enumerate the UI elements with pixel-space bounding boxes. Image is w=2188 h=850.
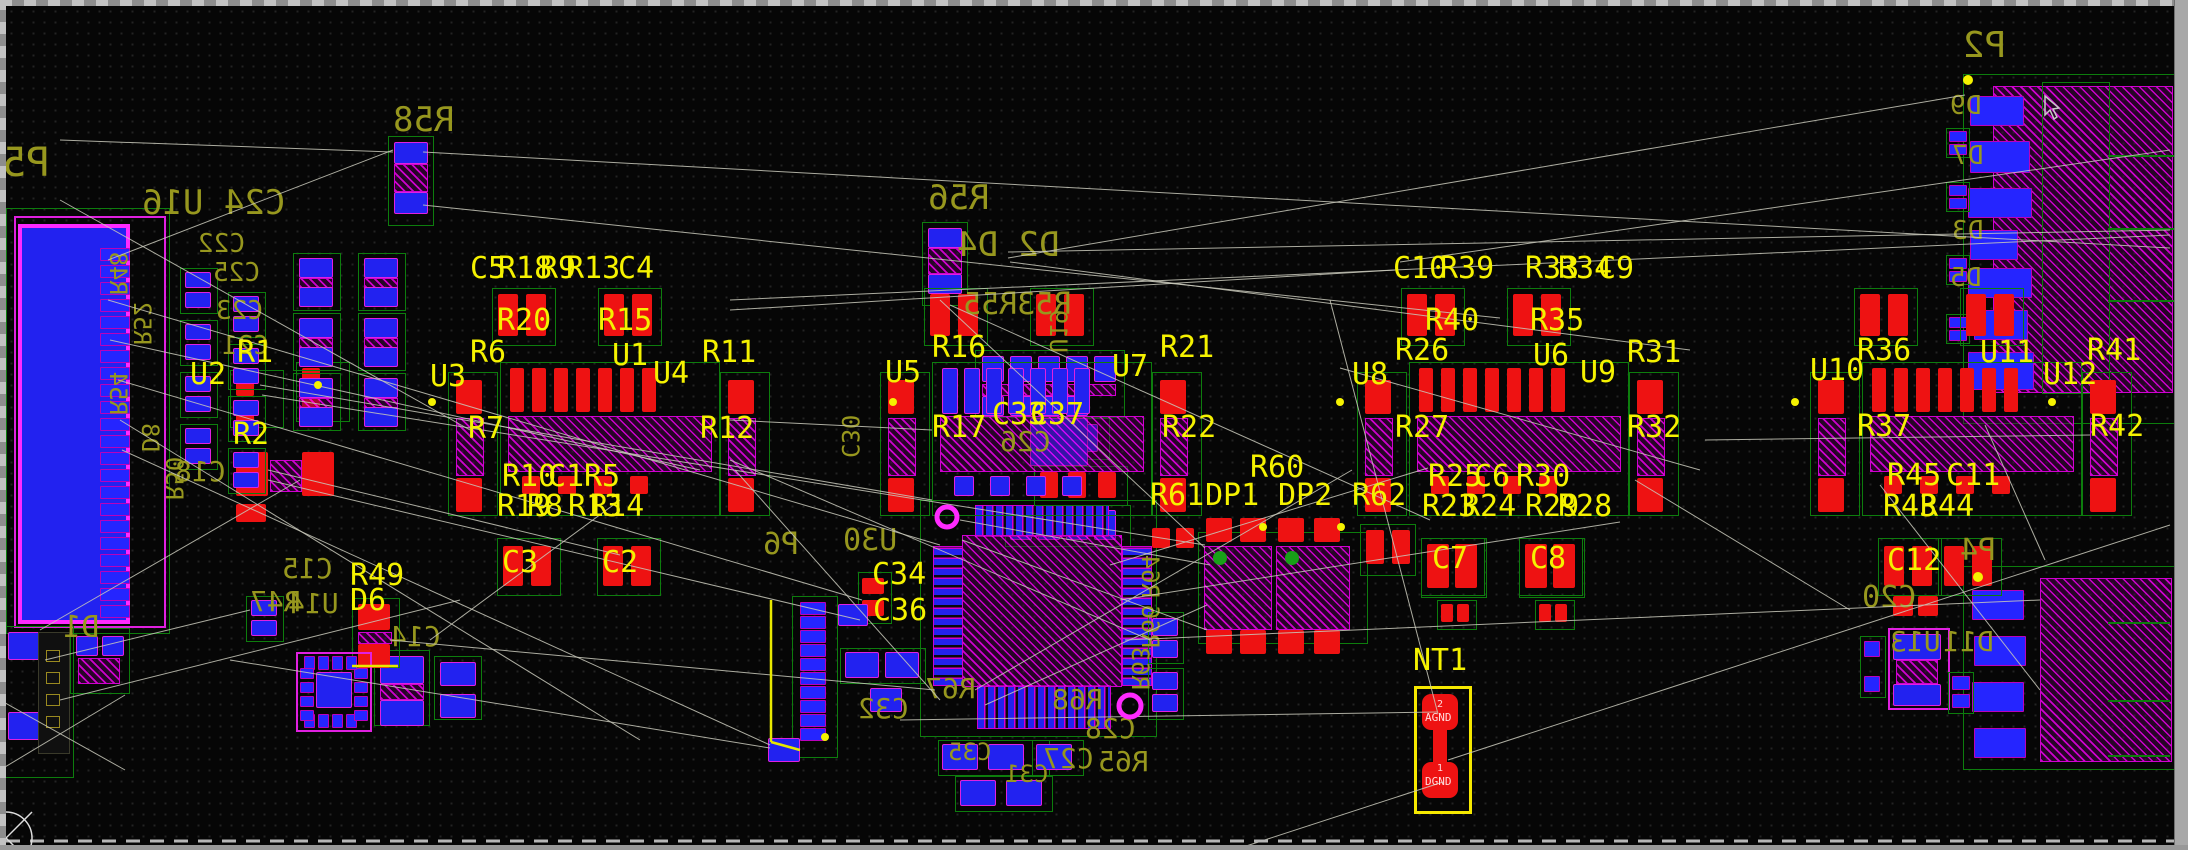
smd-pad-top[interactable] bbox=[1366, 530, 1384, 564]
refdes-bottom-P4[interactable]: P4 bbox=[1960, 536, 1996, 566]
refdes-bottom-C23[interactable]: C23 bbox=[216, 298, 263, 324]
smd-pad-bottom[interactable] bbox=[364, 287, 398, 307]
smd-pad-top[interactable] bbox=[1960, 368, 1974, 412]
smd-pad-bottom[interactable] bbox=[1952, 676, 1970, 690]
refdes-bottom-D9[interactable]: D9 bbox=[1950, 93, 1981, 119]
smd-pad-bottom[interactable] bbox=[300, 682, 314, 693]
refdes-bottom-U14[interactable]: U14 bbox=[288, 590, 339, 618]
refdes-top-C11[interactable]: C11 bbox=[1946, 461, 2000, 491]
refdes-bottom-U19[interactable]: U19 bbox=[1046, 310, 1070, 353]
refdes-top-U7[interactable]: U7 bbox=[1112, 352, 1148, 382]
smd-pad-top[interactable] bbox=[1314, 518, 1340, 542]
smd-pad-bottom[interactable] bbox=[100, 316, 130, 329]
refdes-bottom-C31[interactable]: C31 bbox=[1005, 762, 1048, 786]
smd-pad-bottom[interactable] bbox=[354, 682, 368, 693]
smd-pad-bottom[interactable] bbox=[364, 407, 398, 427]
smd-pad-bottom[interactable] bbox=[364, 347, 398, 367]
smd-pad-bottom[interactable] bbox=[845, 652, 879, 678]
refdes-bottom-C32[interactable]: C32 bbox=[858, 695, 909, 723]
refdes-top-R32[interactable]: R32 bbox=[1627, 413, 1681, 443]
refdes-bottom-C35[interactable]: C35 bbox=[948, 740, 991, 764]
refdes-top-R20[interactable]: R20 bbox=[497, 306, 551, 336]
refdes-bottom-C20[interactable]: C20 bbox=[1862, 583, 1916, 613]
refdes-bottom-C30[interactable]: C30 bbox=[838, 415, 862, 458]
smd-pad-bottom[interactable] bbox=[885, 652, 919, 678]
placebound-hatch[interactable] bbox=[1365, 418, 1393, 476]
refdes-top-C9[interactable]: C9 bbox=[1598, 254, 1634, 284]
net-tie-pin-DGND[interactable]: DGND bbox=[1425, 776, 1452, 787]
smd-pad-bottom[interactable] bbox=[964, 368, 980, 414]
smd-pad-bottom[interactable] bbox=[800, 714, 826, 727]
pcb-editor-window: R1U2R2U3R6R20R15U1U4R11R7R12C5R18R9R13C4… bbox=[0, 0, 2188, 850]
refdes-top-R39[interactable]: R39 bbox=[1440, 254, 1494, 284]
smd-pad-top[interactable] bbox=[576, 368, 590, 412]
smd-pad-bottom[interactable] bbox=[800, 728, 826, 741]
window-scrollbar-right[interactable] bbox=[2174, 0, 2188, 850]
smd-pad-top[interactable] bbox=[1463, 368, 1477, 412]
silk-line bbox=[2108, 300, 2174, 302]
placebound-hatch[interactable] bbox=[1896, 660, 1938, 684]
refdes-bottom-R67[interactable]: R67 bbox=[925, 675, 976, 703]
refdes-top-R12[interactable]: R12 bbox=[700, 414, 754, 444]
refdes-top-D6[interactable]: D6 bbox=[350, 586, 386, 616]
smd-pad-bottom[interactable] bbox=[800, 686, 826, 699]
smd-pad-bottom[interactable] bbox=[100, 588, 130, 601]
refdes-bottom-U13[interactable]: U13 bbox=[1890, 628, 1941, 656]
smd-pad-bottom[interactable] bbox=[1952, 694, 1970, 708]
smd-pad-top[interactable] bbox=[1441, 368, 1455, 412]
smd-pad-bottom[interactable] bbox=[318, 714, 329, 728]
refdes-top-C1[interactable]: C1 bbox=[548, 462, 584, 492]
refdes-top-U1[interactable]: U1 bbox=[612, 341, 648, 371]
refdes-top-U5[interactable]: U5 bbox=[885, 358, 921, 388]
smd-pad-bottom[interactable] bbox=[800, 602, 826, 615]
refdes-top-U8[interactable]: U8 bbox=[1352, 360, 1388, 390]
silk-line bbox=[2108, 755, 2170, 757]
smd-pad-top[interactable] bbox=[1637, 380, 1663, 414]
smd-pad-bottom[interactable] bbox=[100, 435, 130, 448]
smd-pad-bottom[interactable] bbox=[800, 644, 826, 657]
smd-pad-bottom[interactable] bbox=[838, 604, 868, 626]
smd-pad-bottom[interactable] bbox=[185, 292, 211, 308]
refdes-bottom-R48[interactable]: R48 bbox=[106, 252, 130, 295]
smd-pad-bottom[interactable] bbox=[364, 378, 398, 398]
smd-pad-bottom[interactable] bbox=[185, 272, 211, 288]
refdes-top-R21[interactable]: R21 bbox=[1160, 333, 1214, 363]
refdes-top-C7[interactable]: C7 bbox=[1432, 544, 1468, 574]
refdes-top-R61[interactable]: R61 bbox=[1150, 481, 1204, 511]
refdes-bottom-C25[interactable]: C25 bbox=[213, 260, 260, 286]
smd-pad-bottom[interactable] bbox=[800, 700, 826, 713]
smd-pad-top[interactable] bbox=[1176, 528, 1194, 548]
smd-pad-bottom[interactable] bbox=[440, 662, 476, 686]
window-frame-bottom bbox=[0, 845, 2188, 850]
placebound-hatch[interactable] bbox=[270, 460, 302, 492]
placebound-hatch[interactable] bbox=[1204, 546, 1272, 630]
refdes-top-R1[interactable]: R1 bbox=[237, 338, 273, 368]
refdes-top-U4[interactable]: U4 bbox=[653, 359, 689, 389]
placebound-hatch[interactable] bbox=[78, 658, 120, 684]
smd-pad-bottom[interactable] bbox=[1949, 185, 1967, 196]
refdes-top-C4[interactable]: C4 bbox=[618, 254, 654, 284]
smd-pad-bottom[interactable] bbox=[300, 668, 314, 679]
placebound-hatch[interactable] bbox=[1818, 418, 1846, 476]
smd-pad-bottom[interactable] bbox=[251, 620, 277, 636]
smd-pad-bottom[interactable] bbox=[1062, 476, 1082, 496]
smd-pad-top[interactable] bbox=[1529, 368, 1543, 412]
refdes-top-R17[interactable]: R17 bbox=[932, 413, 986, 443]
smd-pad-top[interactable] bbox=[1994, 294, 2014, 336]
smd-pad-bottom[interactable] bbox=[8, 712, 42, 740]
smd-pad-bottom[interactable] bbox=[299, 347, 333, 367]
smd-pad-bottom[interactable] bbox=[100, 537, 130, 550]
refdes-top-R6[interactable]: R6 bbox=[470, 338, 506, 368]
smd-pad-top[interactable] bbox=[2090, 478, 2116, 512]
refdes-bottom-R66[interactable]: R66 bbox=[1138, 605, 1162, 648]
smd-pad-bottom[interactable] bbox=[299, 287, 333, 307]
refdes-top-R35[interactable]: R35 bbox=[1530, 306, 1584, 336]
smd-pad-top[interactable] bbox=[1206, 518, 1232, 542]
smd-pad-bottom[interactable] bbox=[299, 378, 333, 398]
refdes-top-R28[interactable]: R28 bbox=[1558, 492, 1612, 522]
placebound-hatch[interactable] bbox=[962, 535, 1122, 687]
refdes-bottom-R50[interactable]: R50 bbox=[162, 457, 186, 500]
smd-pad-bottom[interactable] bbox=[354, 710, 368, 721]
smd-pad-bottom[interactable] bbox=[300, 696, 314, 707]
smd-pad-top[interactable] bbox=[2004, 368, 2018, 412]
refdes-bottom-P5[interactable]: P5 bbox=[2, 143, 50, 183]
smd-pad-top[interactable] bbox=[598, 368, 612, 412]
placebound-hatch[interactable] bbox=[358, 632, 392, 644]
silk-line bbox=[2108, 622, 2170, 624]
smd-pad-bottom[interactable] bbox=[1893, 684, 1941, 706]
refdes-top-U11[interactable]: U11 bbox=[1980, 338, 2034, 368]
smd-pad-bottom[interactable] bbox=[299, 318, 333, 338]
smd-pad-bottom[interactable] bbox=[233, 368, 259, 384]
smd-pad-bottom[interactable] bbox=[364, 258, 398, 278]
smd-pad-bottom[interactable] bbox=[100, 350, 130, 363]
refdes-top-R2[interactable]: R2 bbox=[233, 420, 269, 450]
smd-pad-bottom[interactable] bbox=[354, 696, 368, 707]
smd-pad-top[interactable] bbox=[532, 368, 546, 412]
smd-pad-top[interactable] bbox=[1982, 368, 1996, 412]
refdes-top-R26[interactable]: R26 bbox=[1395, 336, 1449, 366]
smd-pad-bottom[interactable] bbox=[100, 605, 130, 618]
refdes-bottom-R64[interactable]: R64 bbox=[1138, 555, 1162, 598]
smd-pad-top[interactable] bbox=[1551, 368, 1565, 412]
refdes-top-R5[interactable]: R5 bbox=[584, 462, 620, 492]
window-frame-left bbox=[0, 0, 6, 850]
smd-pad-top[interactable] bbox=[1152, 528, 1170, 548]
refdes-top-R15[interactable]: R15 bbox=[598, 306, 652, 336]
refdes-top-R45[interactable]: R45 bbox=[1887, 461, 1941, 491]
smd-pad-bottom[interactable] bbox=[942, 368, 958, 414]
refdes-top-U3[interactable]: U3 bbox=[430, 362, 466, 392]
smd-pad-top[interactable] bbox=[456, 478, 482, 512]
placebound-hatch[interactable] bbox=[1276, 546, 1350, 630]
refdes-top-U6[interactable]: U6 bbox=[1533, 341, 1569, 371]
refdes-bottom-D11[interactable]: D11 bbox=[1943, 628, 1994, 656]
refdes-bottom-P6[interactable]: P6 bbox=[763, 530, 799, 560]
smd-pad-bottom[interactable] bbox=[185, 428, 211, 444]
smd-pad-top[interactable] bbox=[1507, 368, 1521, 412]
refdes-top-R24[interactable]: R24 bbox=[1462, 492, 1516, 522]
refdes-bottom-U30[interactable]: U30 bbox=[843, 526, 897, 556]
refdes-bottom-P2[interactable]: P2 bbox=[1963, 28, 2006, 64]
smd-pad-top[interactable] bbox=[1860, 294, 1880, 336]
smd-pad-bottom[interactable] bbox=[364, 318, 398, 338]
connector-contact[interactable] bbox=[46, 694, 60, 706]
smd-pad-bottom[interactable] bbox=[100, 520, 130, 533]
smd-pad-bottom[interactable] bbox=[394, 192, 428, 214]
pcb-layout-canvas[interactable]: R1U2R2U3R6R20R15U1U4R11R7R12C5R18R9R13C4… bbox=[6, 6, 2174, 845]
refdes-top-R27[interactable]: R27 bbox=[1395, 413, 1449, 443]
refdes-top-R36[interactable]: R36 bbox=[1857, 336, 1911, 366]
smd-pad-top[interactable] bbox=[236, 504, 266, 522]
refdes-bottom-D8[interactable]: D8 bbox=[138, 423, 162, 452]
smd-pad-top[interactable] bbox=[1818, 478, 1844, 512]
smd-pad-top[interactable] bbox=[620, 368, 634, 412]
refdes-bottom-C14[interactable]: C14 bbox=[390, 623, 441, 651]
refdes-bottom-C26[interactable]: C26 bbox=[1000, 428, 1051, 456]
refdes-bottom-C22[interactable]: C22 bbox=[198, 231, 245, 257]
refdes-top-C37[interactable]: C37 bbox=[1030, 400, 1084, 430]
smd-pad-top[interactable] bbox=[1206, 630, 1232, 654]
smd-pad-top[interactable] bbox=[728, 478, 754, 512]
smd-pad-top[interactable] bbox=[1938, 368, 1952, 412]
refdes-top-R22[interactable]: R22 bbox=[1162, 413, 1216, 443]
smd-pad-top[interactable] bbox=[1888, 294, 1908, 336]
silk-line bbox=[2108, 700, 2170, 702]
refdes-top-R30[interactable]: R30 bbox=[1516, 462, 1570, 492]
placebound-hatch[interactable] bbox=[888, 418, 916, 476]
smd-pad-bottom[interactable] bbox=[990, 476, 1010, 496]
refdes-top-R11[interactable]: R11 bbox=[702, 338, 756, 368]
smd-pad-bottom[interactable] bbox=[1152, 672, 1178, 690]
refdes-top-C3[interactable]: C3 bbox=[502, 548, 538, 578]
refdes-bottom-C24U16[interactable]: C24 U16 bbox=[142, 186, 285, 220]
smd-pad-top[interactable] bbox=[1457, 604, 1469, 622]
refdes-top-U2[interactable]: U2 bbox=[190, 360, 226, 390]
refdes-top-R8[interactable]: R8 bbox=[527, 492, 563, 522]
smd-pad-bottom[interactable] bbox=[100, 452, 130, 465]
smd-pad-bottom[interactable] bbox=[316, 672, 352, 708]
refdes-top-R37[interactable]: R37 bbox=[1857, 412, 1911, 442]
smd-pad-bottom[interactable] bbox=[100, 299, 130, 312]
refdes-top-R31[interactable]: R31 bbox=[1627, 338, 1681, 368]
refdes-top-R41[interactable]: R41 bbox=[2087, 336, 2141, 366]
smd-pad-bottom[interactable] bbox=[299, 258, 333, 278]
smd-pad-bottom[interactable] bbox=[185, 396, 211, 412]
refdes-top-DP2[interactable]: DP2 bbox=[1278, 481, 1332, 511]
refdes-top-C12[interactable]: C12 bbox=[1887, 546, 1941, 576]
refdes-bottom-R54[interactable]: R54 bbox=[106, 372, 130, 415]
refdes-bottom-R52[interactable]: R52 bbox=[130, 302, 154, 345]
smd-pad-bottom[interactable] bbox=[100, 418, 130, 431]
refdes-bottom-D7[interactable]: D7 bbox=[1952, 143, 1983, 169]
refdes-top-R7[interactable]: R7 bbox=[468, 414, 504, 444]
smd-pad-bottom[interactable] bbox=[440, 694, 476, 718]
smd-pad-top[interactable] bbox=[1314, 630, 1340, 654]
refdes-bottom-R56[interactable]: R56 bbox=[928, 181, 989, 215]
smd-pad-top[interactable] bbox=[888, 478, 914, 512]
refdes-top-U9[interactable]: U9 bbox=[1580, 358, 1616, 388]
smd-pad-bottom[interactable] bbox=[318, 656, 329, 670]
smd-pad-bottom[interactable] bbox=[332, 656, 343, 670]
placebound-hatch[interactable] bbox=[394, 164, 428, 192]
smd-pad-top[interactable] bbox=[1392, 530, 1410, 564]
smd-pad-top[interactable] bbox=[554, 368, 568, 412]
smd-pad-bottom[interactable] bbox=[954, 476, 974, 496]
smd-pad-bottom[interactable] bbox=[332, 714, 343, 728]
smd-pad-top[interactable] bbox=[1918, 596, 1938, 616]
smd-pad-bottom[interactable] bbox=[1974, 728, 2026, 758]
smd-pad-top[interactable] bbox=[1966, 294, 1986, 336]
smd-pad-top[interactable] bbox=[1555, 604, 1567, 622]
smd-pad-bottom[interactable] bbox=[800, 672, 826, 685]
smd-pad-bottom[interactable] bbox=[102, 636, 124, 656]
smd-pad-bottom[interactable] bbox=[100, 554, 130, 567]
smd-pad-top[interactable] bbox=[302, 452, 334, 496]
net-tie-pin-1[interactable]: 1 bbox=[1437, 764, 1443, 774]
smd-pad-bottom[interactable] bbox=[233, 472, 259, 488]
smd-pad-top[interactable] bbox=[1872, 368, 1886, 412]
silk-line bbox=[2108, 155, 2174, 157]
placebound-hatch[interactable] bbox=[380, 684, 424, 700]
refdes-top-NT1[interactable]: NT1 bbox=[1413, 646, 1467, 676]
smd-pad-top[interactable] bbox=[1485, 368, 1499, 412]
refdes-top-C2[interactable]: C2 bbox=[602, 548, 638, 578]
smd-pad-bottom[interactable] bbox=[394, 142, 428, 164]
smd-pad-bottom[interactable] bbox=[100, 486, 130, 499]
smd-pad-bottom[interactable] bbox=[1968, 188, 2032, 218]
refdes-top-R16[interactable]: R16 bbox=[932, 333, 986, 363]
refdes-bottom-D1[interactable]: D1 bbox=[63, 613, 99, 643]
smd-pad-top[interactable] bbox=[1240, 518, 1266, 542]
net-tie-pin-2[interactable]: 2 bbox=[1437, 700, 1443, 710]
smd-pad-bottom[interactable] bbox=[1864, 676, 1880, 692]
smd-pad-top[interactable] bbox=[1637, 478, 1663, 512]
smd-pad-bottom[interactable] bbox=[233, 452, 259, 468]
smd-pad-bottom[interactable] bbox=[100, 571, 130, 584]
smd-pad-bottom[interactable] bbox=[100, 503, 130, 516]
smd-pad-bottom[interactable] bbox=[300, 710, 314, 721]
refdes-top-R40[interactable]: R40 bbox=[1425, 306, 1479, 336]
refdes-top-R13[interactable]: R13 bbox=[566, 254, 620, 284]
refdes-top-R14[interactable]: R14 bbox=[590, 492, 644, 522]
smd-pad-top[interactable] bbox=[510, 368, 524, 412]
refdes-bottom-C27[interactable]: C27 bbox=[1043, 745, 1094, 773]
smd-pad-top[interactable] bbox=[1278, 630, 1304, 654]
smd-pad-top[interactable] bbox=[1278, 518, 1304, 542]
refdes-bottom-C28[interactable]: C28 bbox=[1085, 715, 1136, 743]
smd-pad-bottom[interactable] bbox=[100, 469, 130, 482]
smd-pad-bottom[interactable] bbox=[100, 333, 130, 346]
refdes-top-C34[interactable]: C34 bbox=[872, 560, 926, 590]
smd-pad-top[interactable] bbox=[1894, 368, 1908, 412]
refdes-bottom-R68[interactable]: R68 bbox=[1052, 686, 1103, 714]
smd-pad-top[interactable] bbox=[1160, 380, 1186, 414]
refdes-bottom-C15[interactable]: C15 bbox=[282, 555, 333, 583]
refdes-top-R42[interactable]: R42 bbox=[2090, 412, 2144, 442]
connector-contact[interactable] bbox=[46, 650, 60, 662]
refdes-bottom-D3[interactable]: D3 bbox=[1952, 218, 1983, 244]
refdes-bottom-D5[interactable]: D5 bbox=[1950, 265, 1981, 291]
smd-pad-bottom[interactable] bbox=[380, 700, 424, 726]
refdes-bottom-D2D4[interactable]: D2 D4 bbox=[957, 228, 1059, 262]
smd-pad-bottom[interactable] bbox=[1949, 198, 1967, 209]
refdes-top-C36[interactable]: C36 bbox=[873, 596, 927, 626]
refdes-top-C8[interactable]: C8 bbox=[1530, 544, 1566, 574]
smd-pad-bottom[interactable] bbox=[1026, 476, 1046, 496]
refdes-top-DP1[interactable]: DP1 bbox=[1205, 481, 1259, 511]
refdes-bottom-R63[interactable]: R63 bbox=[1128, 647, 1152, 690]
smd-pad-bottom[interactable] bbox=[800, 616, 826, 629]
smd-pad-bottom[interactable] bbox=[185, 324, 211, 340]
smd-pad-top[interactable] bbox=[1441, 604, 1453, 622]
smd-pad-bottom[interactable] bbox=[233, 400, 259, 416]
refdes-top-C6[interactable]: C6 bbox=[1474, 462, 1510, 492]
qfp-pad-column[interactable] bbox=[933, 546, 963, 686]
smd-pad-bottom[interactable] bbox=[8, 632, 42, 660]
window-frame-top bbox=[0, 0, 2188, 6]
smd-pad-bottom[interactable] bbox=[299, 407, 333, 427]
smd-pad-bottom[interactable] bbox=[1152, 694, 1178, 712]
smd-pad-bottom[interactable] bbox=[1864, 641, 1880, 657]
refdes-bottom-R65[interactable]: R65 bbox=[1098, 748, 1149, 776]
silk-line bbox=[2108, 228, 2174, 230]
smd-pad-bottom[interactable] bbox=[346, 656, 357, 670]
smd-pad-top[interactable] bbox=[1407, 294, 1427, 336]
smd-pad-bottom[interactable] bbox=[1972, 682, 2024, 712]
smd-pad-bottom[interactable] bbox=[800, 658, 826, 671]
smd-pad-top[interactable] bbox=[1240, 630, 1266, 654]
smd-pad-top[interactable] bbox=[728, 380, 754, 414]
refdes-top-R62[interactable]: R62 bbox=[1352, 481, 1406, 511]
refdes-top-R44[interactable]: R44 bbox=[1920, 492, 1974, 522]
net-tie-pin-AGND[interactable]: AGND bbox=[1425, 712, 1452, 723]
smd-pad-bottom[interactable] bbox=[800, 630, 826, 643]
smd-pad-top[interactable] bbox=[1419, 368, 1433, 412]
smd-pad-bottom[interactable] bbox=[768, 738, 800, 762]
placebound-hatch[interactable] bbox=[2040, 578, 2172, 762]
smd-pad-bottom[interactable] bbox=[960, 780, 996, 806]
smd-pad-top[interactable] bbox=[1539, 604, 1551, 622]
connector-contact[interactable] bbox=[46, 716, 60, 728]
smd-pad-top[interactable] bbox=[1916, 368, 1930, 412]
connector-contact[interactable] bbox=[46, 672, 60, 684]
refdes-bottom-R58[interactable]: R58 bbox=[393, 103, 454, 137]
